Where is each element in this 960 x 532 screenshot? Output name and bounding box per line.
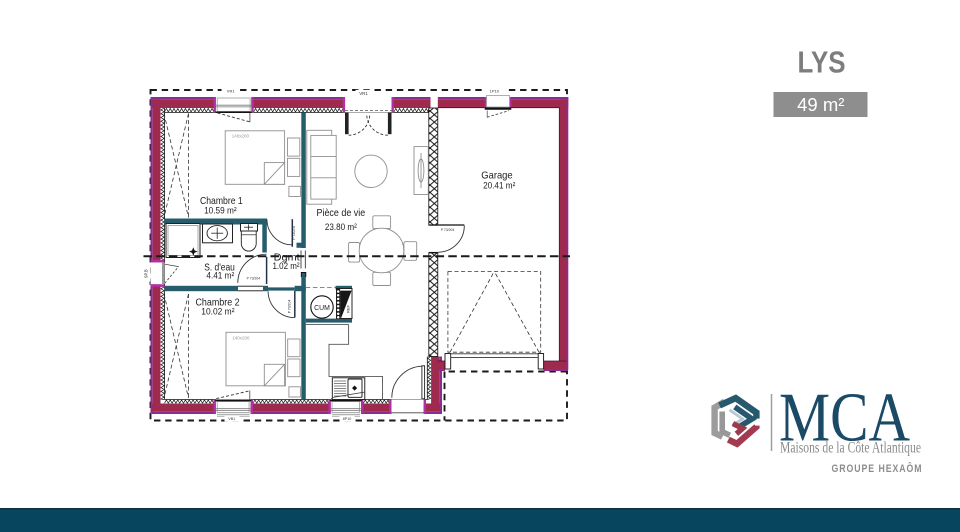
svg-text:1P10: 1P10 — [490, 88, 500, 93]
svg-text:10.59 m²: 10.59 m² — [204, 204, 237, 215]
svg-text:REF: REF — [346, 304, 351, 313]
svg-text:140x200: 140x200 — [232, 336, 250, 341]
svg-text:LYS: LYS — [798, 45, 846, 80]
svg-text:10.02 m²: 10.02 m² — [201, 306, 234, 317]
svg-text:VR1: VR1 — [359, 91, 368, 96]
svg-text:Maisons de la Côte Atlantique: Maisons de la Côte Atlantique — [780, 439, 921, 456]
svg-text:140x200: 140x200 — [232, 134, 250, 139]
svg-text:1.02 m²: 1.02 m² — [273, 260, 300, 271]
svg-text:49 m²: 49 m² — [797, 94, 844, 115]
svg-text:P 73/204: P 73/204 — [441, 228, 455, 232]
svg-text:VR1: VR1 — [227, 88, 236, 93]
svg-text:CUM: CUM — [314, 305, 330, 312]
svg-text:20.41 m²: 20.41 m² — [483, 179, 515, 190]
svg-text:Pièce de vie: Pièce de vie — [317, 208, 366, 219]
svg-text:GROUPE HEXAÔM: GROUPE HEXAÔM — [832, 462, 923, 475]
svg-text:8P10: 8P10 — [343, 417, 351, 421]
svg-text:4.41 m²: 4.41 m² — [206, 270, 234, 281]
svg-text:VB1: VB1 — [228, 417, 235, 421]
svg-text:P 73/204: P 73/204 — [288, 300, 292, 314]
svg-text:P 73/204: P 73/204 — [292, 226, 296, 240]
svg-text:23.80 m²: 23.80 m² — [325, 221, 357, 232]
svg-text:9P.B: 9P.B — [143, 269, 148, 278]
svg-text:P 73/204: P 73/204 — [247, 277, 261, 281]
